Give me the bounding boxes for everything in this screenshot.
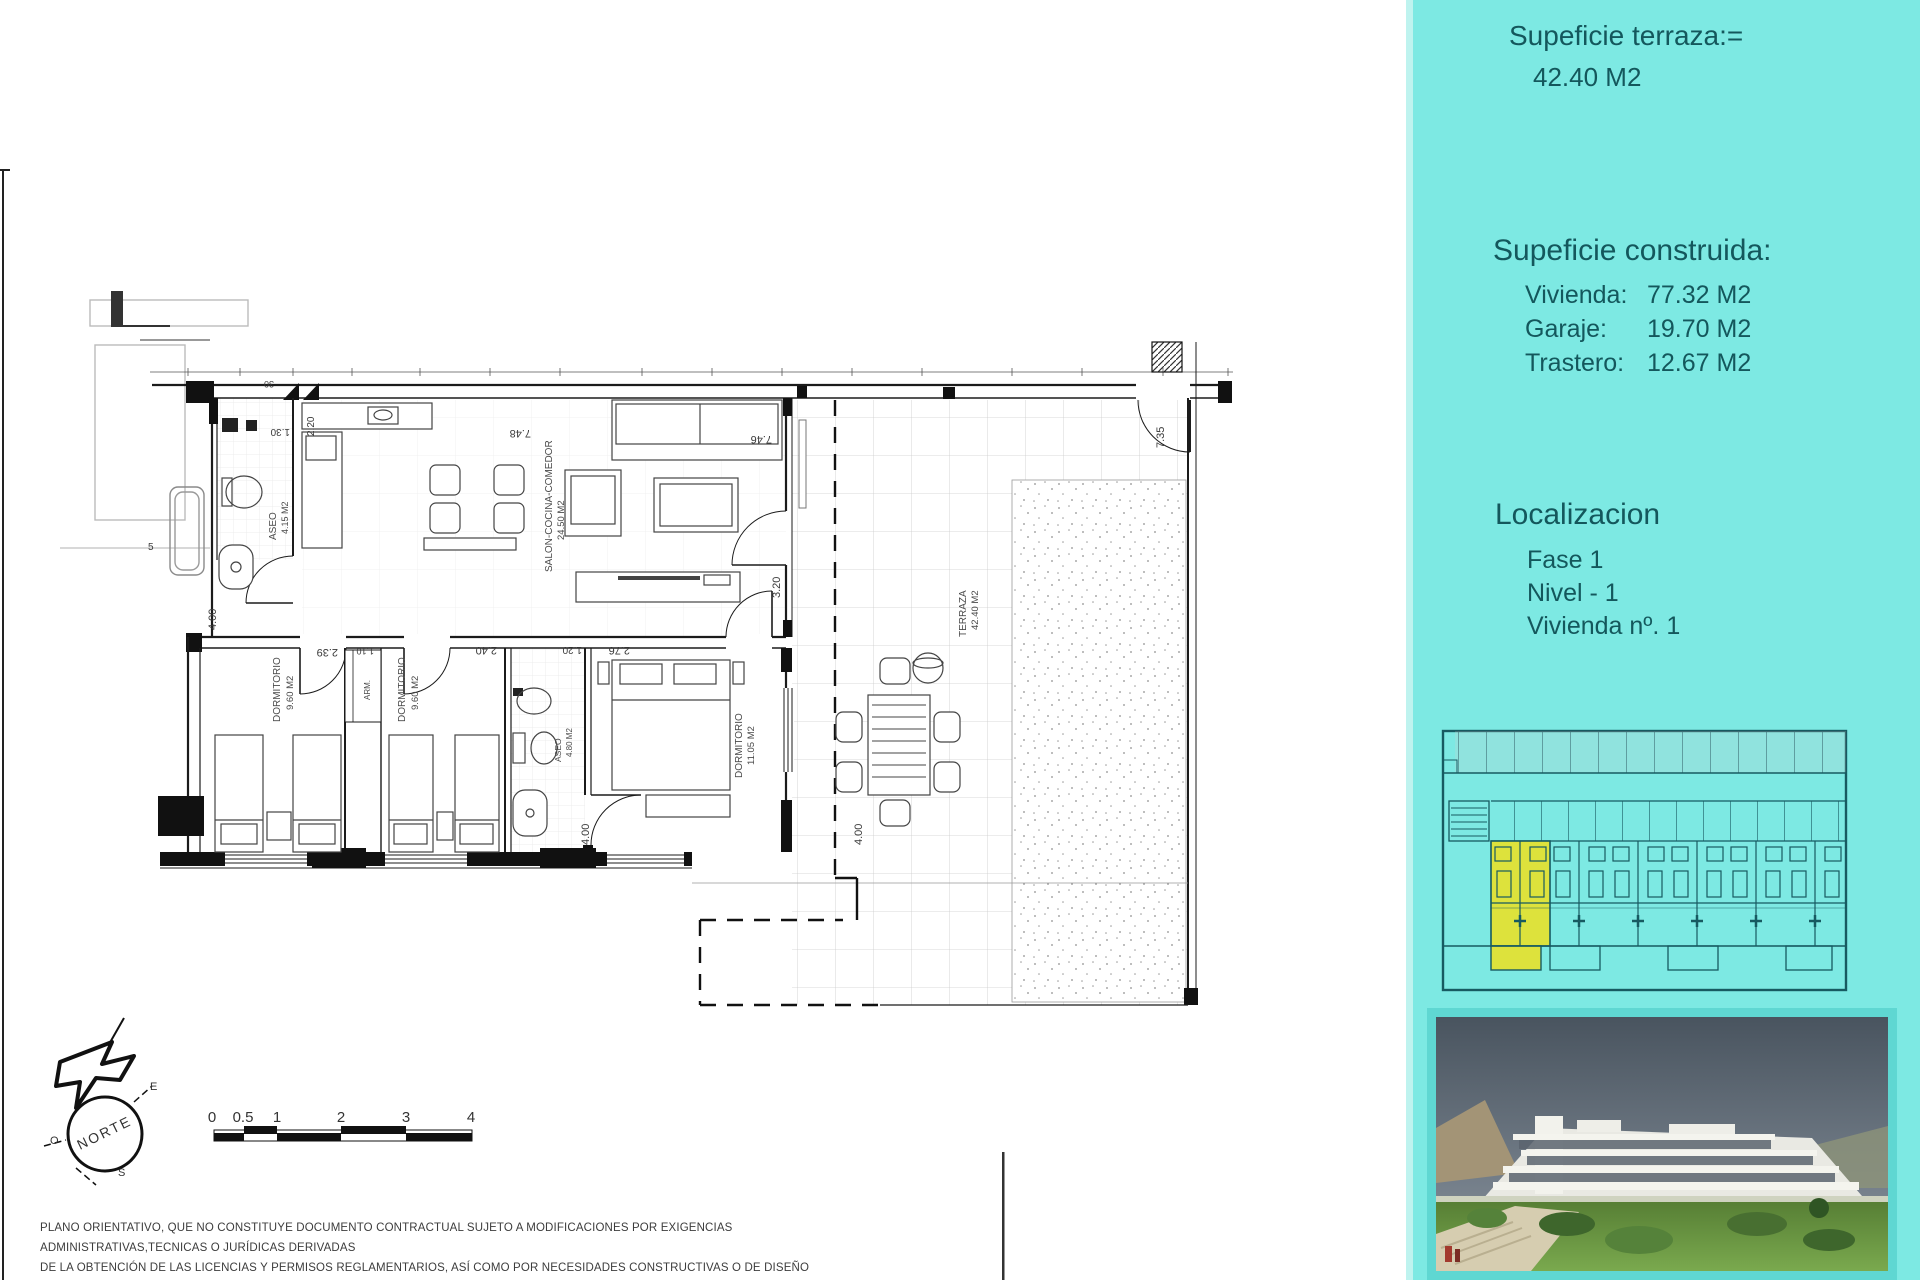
room-label-aseo2: ASEO <box>553 738 563 762</box>
location-title: Localizacion <box>1495 498 1660 532</box>
top-dimension-line <box>150 368 1233 376</box>
built-area-row: Garaje: 19.70 M2 <box>1525 312 1751 346</box>
neighbour-wall-stub <box>112 292 210 340</box>
terrace-area-value: 42.40 M2 <box>1533 62 1641 93</box>
svg-text:7.35: 7.35 <box>1155 427 1167 448</box>
svg-text:4: 4 <box>467 1109 475 1126</box>
room-label-arm: ARM. <box>363 680 372 700</box>
svg-text:4.80 M2: 4.80 M2 <box>565 728 574 757</box>
disclaimer-line: DE LA OBTENCIÓN DE LAS LICENCIAS Y PERMI… <box>40 1258 820 1280</box>
svg-text:4.00: 4.00 <box>207 609 219 630</box>
built-area-row: Vivienda: 77.32 M2 <box>1525 278 1751 312</box>
scale-bar: 0 0.5 1 2 3 4 <box>208 1109 475 1141</box>
svg-text:24.50 M2: 24.50 M2 <box>556 500 567 540</box>
room-label-dorm1: DORMITORIO <box>272 657 283 722</box>
room-label-salon: SALON-COCINA-COMEDOR <box>544 440 555 572</box>
svg-text:2.40: 2.40 <box>476 644 497 656</box>
svg-text:9.60 M2: 9.60 M2 <box>410 676 421 710</box>
info-panel: Supeficie terraza:= 42.40 M2 Supeficie c… <box>1406 0 1920 1280</box>
footer-divider <box>1002 1152 1005 1280</box>
svg-text:S: S <box>118 1167 125 1179</box>
room-label-aseo1: ASEO <box>268 512 279 540</box>
svg-text:0.5: 0.5 <box>233 1109 254 1126</box>
floor-plan-drawing: ASEO 4.15 M2 SALON-COCINA-COMEDOR 24.50 … <box>0 0 1406 1280</box>
svg-text:5: 5 <box>148 542 154 553</box>
svg-text:7.48: 7.48 <box>510 427 531 439</box>
building-photo <box>1427 1008 1897 1280</box>
disclaimer: PLANO ORIENTATIVO, QUE NO CONSTITUYE DOC… <box>40 1218 820 1280</box>
north-arrow-icon: NORTE E O S <box>44 1018 157 1185</box>
svg-text:2: 2 <box>337 1109 345 1126</box>
room-label-dorm2: DORMITORIO <box>397 657 408 722</box>
svg-text:4.15 M2: 4.15 M2 <box>280 501 290 534</box>
north-label: NORTE <box>74 1113 134 1153</box>
svg-text:4.00: 4.00 <box>580 824 592 845</box>
built-area-rows: Vivienda: 77.32 M2 Garaje: 19.70 M2 Tras… <box>1525 278 1751 380</box>
svg-text:42.40 M2: 42.40 M2 <box>970 590 981 630</box>
svg-text:1.30: 1.30 <box>270 426 290 437</box>
garden-stipple <box>1012 480 1186 1002</box>
svg-text:2.76: 2.76 <box>609 644 630 656</box>
svg-text:0: 0 <box>208 1109 216 1126</box>
terrace-area-title: Supeficie terraza:= <box>1509 20 1743 52</box>
svg-text:2.39: 2.39 <box>317 646 338 658</box>
location-row: Nivel - 1 <box>1527 577 1680 610</box>
site-plan <box>1439 727 1852 994</box>
svg-text:O: O <box>50 1135 59 1147</box>
svg-text:E: E <box>150 1081 157 1093</box>
location-row: Fase 1 <box>1527 544 1680 577</box>
svg-text:3.20: 3.20 <box>771 577 783 598</box>
svg-text:7.46: 7.46 <box>751 433 772 445</box>
location-rows: Fase 1 Nivel - 1 Vivienda nº. 1 <box>1527 544 1680 643</box>
svg-text:30: 30 <box>264 379 274 389</box>
svg-text:4.00: 4.00 <box>853 824 865 845</box>
room-label-master: DORMITORIO <box>734 713 745 778</box>
svg-text:1.10: 1.10 <box>356 646 374 656</box>
photo-image <box>1436 1017 1888 1271</box>
svg-text:9.60 M2: 9.60 M2 <box>285 676 296 710</box>
svg-text:11.05 M2: 11.05 M2 <box>746 726 757 765</box>
built-area-title: Supeficie construida: <box>1493 234 1772 268</box>
svg-text:3: 3 <box>402 1109 410 1126</box>
sheet-border <box>0 170 10 1280</box>
svg-text:1: 1 <box>273 1109 281 1126</box>
location-row: Vivienda nº. 1 <box>1527 610 1680 643</box>
built-area-row: Trastero: 12.67 M2 <box>1525 346 1751 380</box>
svg-text:1.20: 1.20 <box>562 644 582 655</box>
plan-sheet: ASEO 4.15 M2 SALON-COCINA-COMEDOR 24.50 … <box>0 0 1920 1280</box>
svg-text:2.20: 2.20 <box>306 416 317 436</box>
disclaimer-line: PLANO ORIENTATIVO, QUE NO CONSTITUYE DOC… <box>40 1218 820 1258</box>
room-label-terraza: TERRAZA <box>958 590 969 637</box>
